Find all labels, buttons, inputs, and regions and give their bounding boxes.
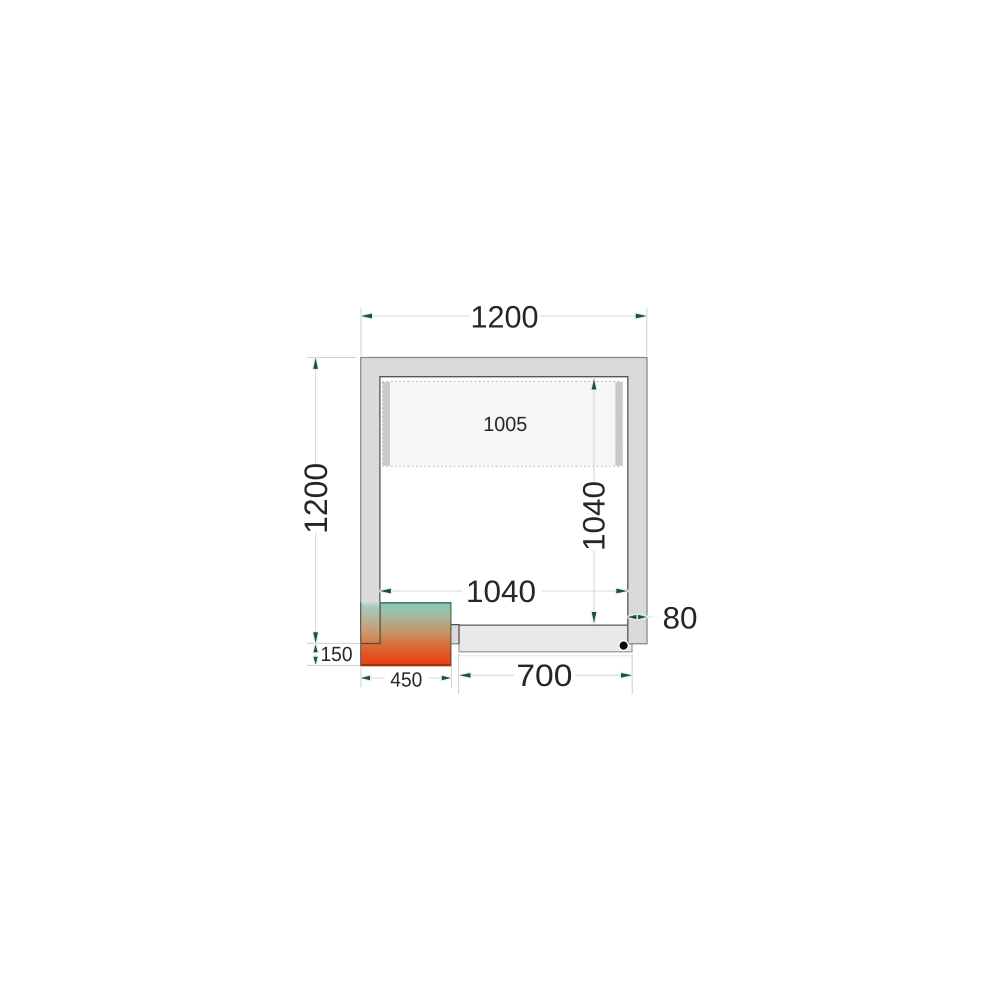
svg-text:700: 700 xyxy=(516,658,572,693)
svg-text:1040: 1040 xyxy=(577,481,612,551)
svg-text:1200: 1200 xyxy=(471,299,539,334)
svg-text:1040: 1040 xyxy=(466,574,536,609)
svg-text:150: 150 xyxy=(321,643,353,666)
svg-text:450: 450 xyxy=(390,669,422,692)
svg-text:1200: 1200 xyxy=(298,463,334,534)
svg-text:80: 80 xyxy=(663,601,698,636)
svg-text:1005: 1005 xyxy=(483,413,527,436)
